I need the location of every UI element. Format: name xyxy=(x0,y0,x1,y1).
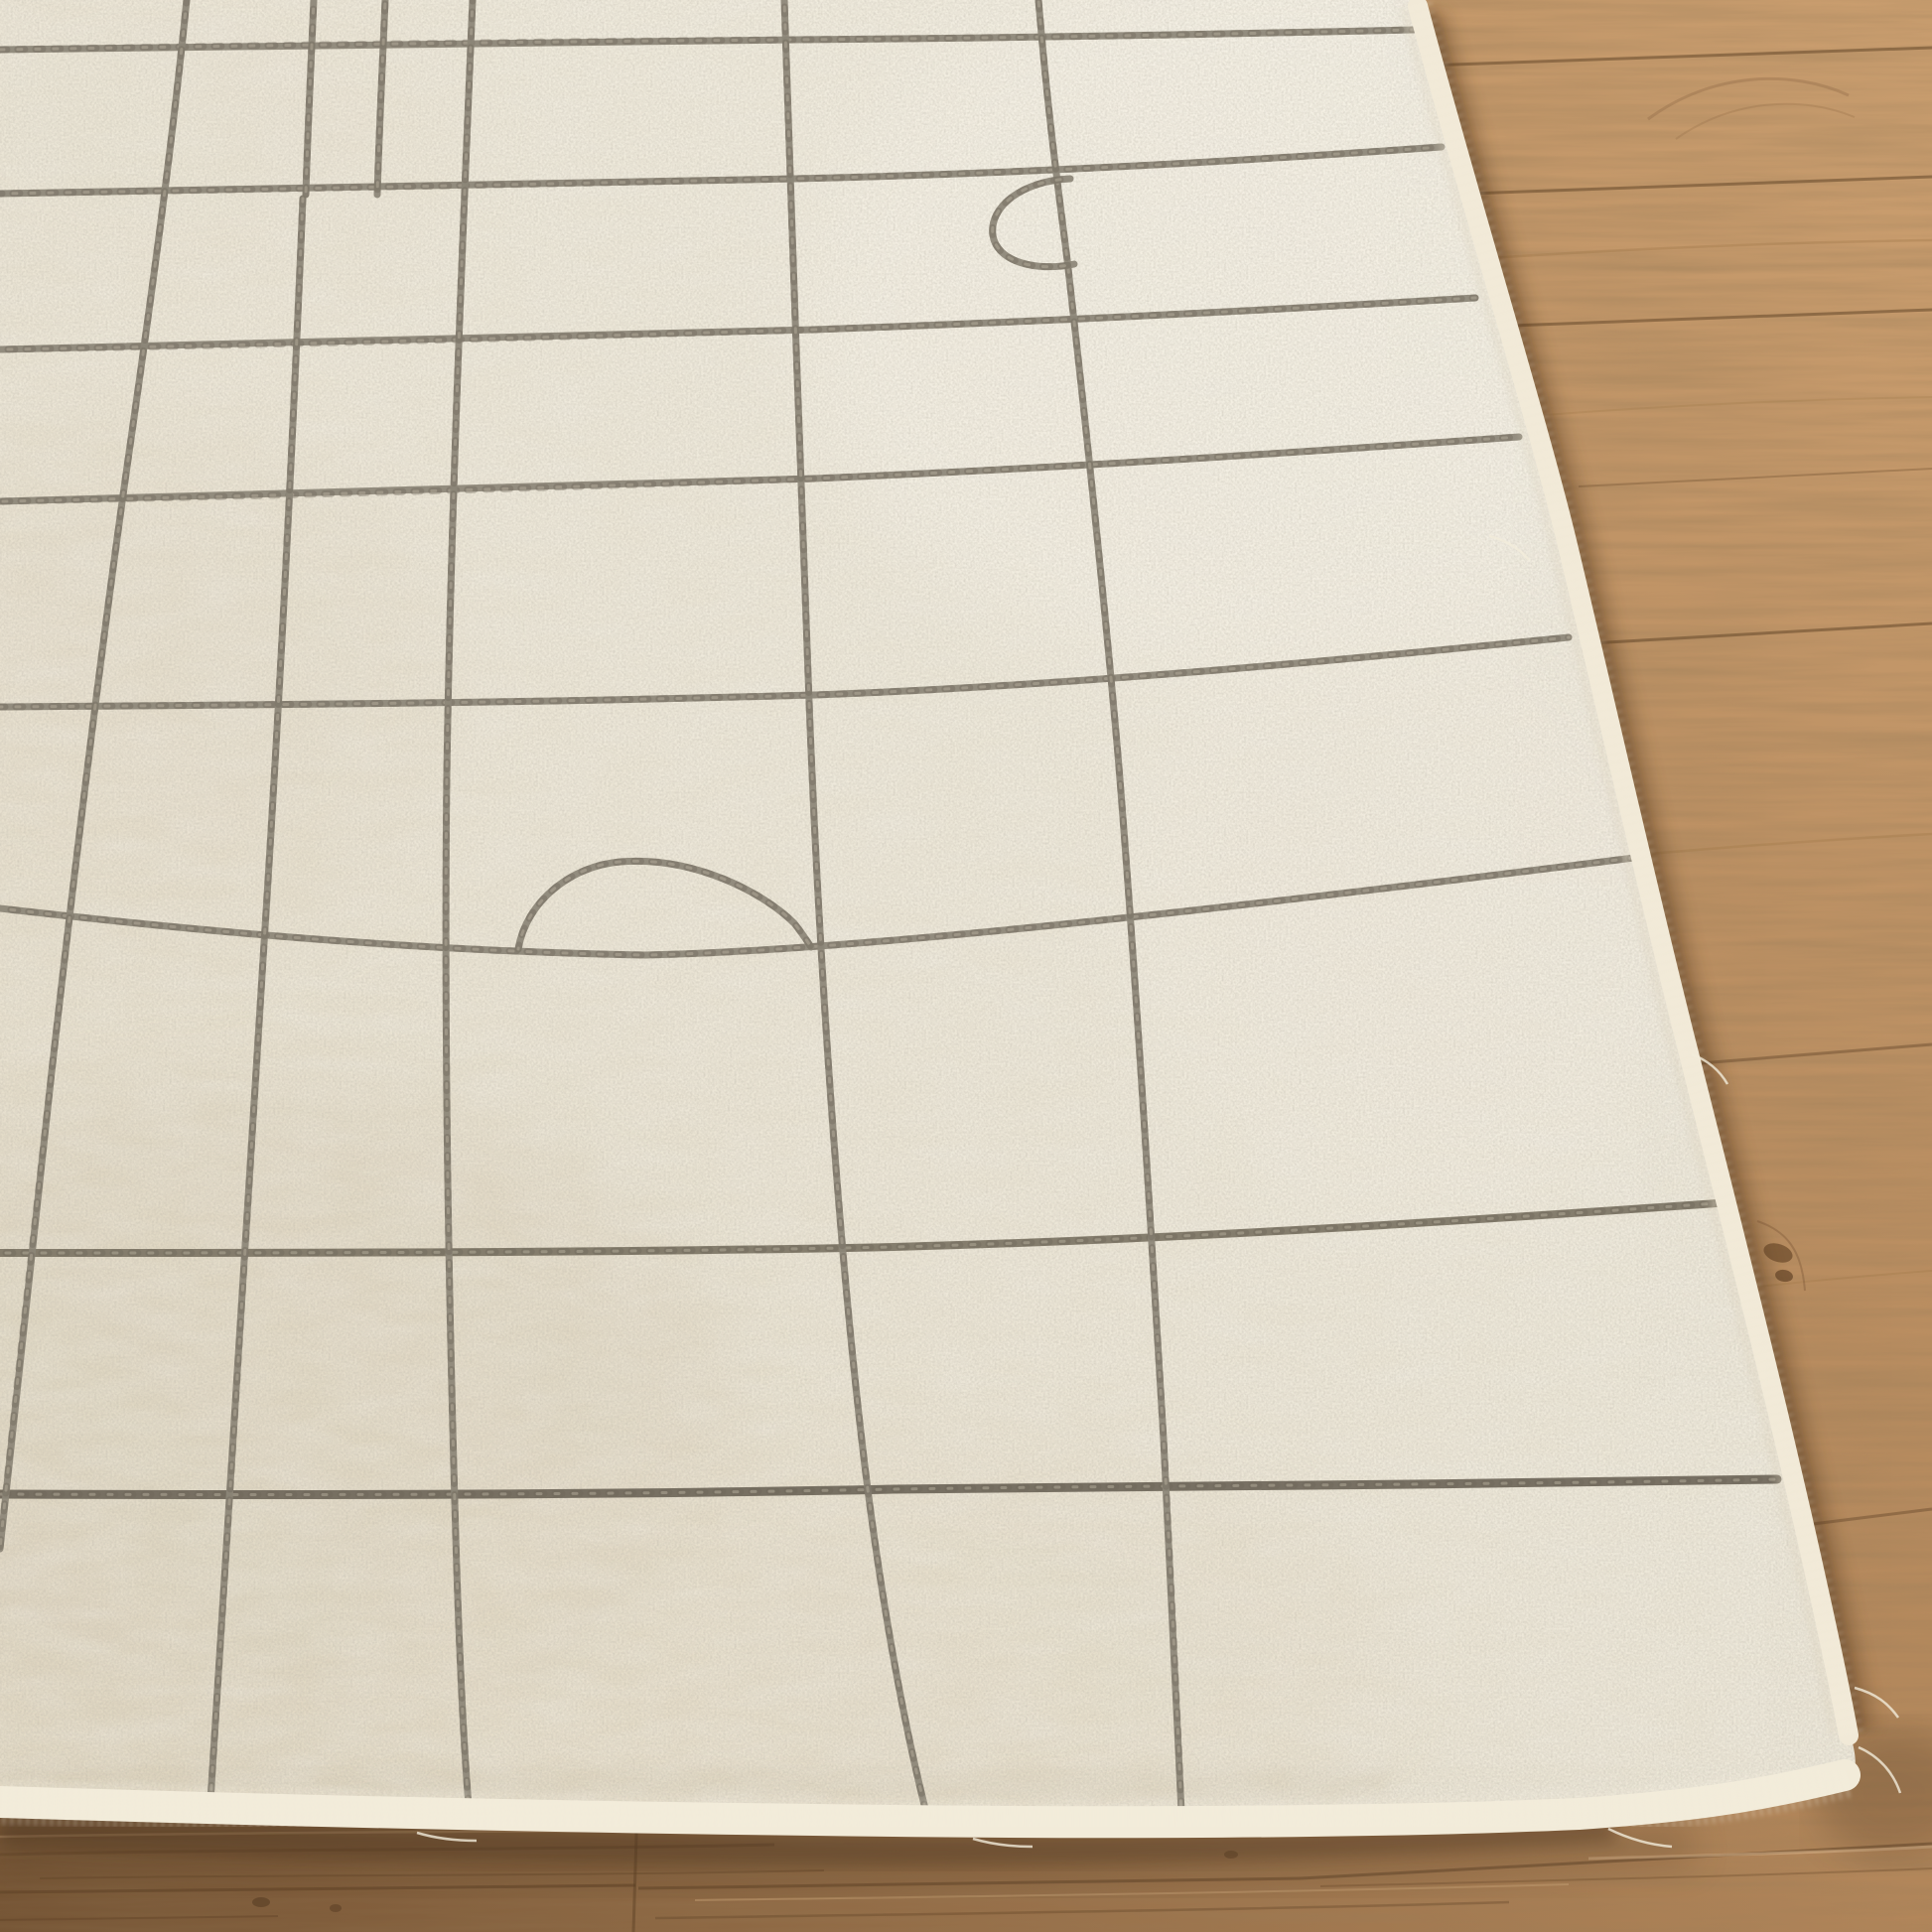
wood-knot xyxy=(330,1904,342,1912)
wood-knot xyxy=(252,1897,270,1907)
scene-svg xyxy=(0,0,1932,1932)
rug-on-wood-floor-photo xyxy=(0,0,1932,1932)
